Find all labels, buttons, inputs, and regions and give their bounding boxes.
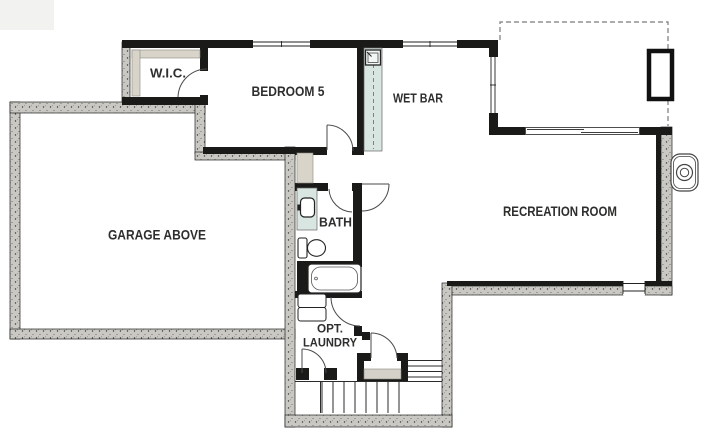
- rec-east-wall: [661, 127, 672, 295]
- west-column-wall: [285, 147, 295, 427]
- vanity-faucet: [298, 205, 302, 211]
- floor-plan-canvas: W.I.C. BEDROOM 5 WET BAR GARAGE ABOVE BA…: [0, 0, 720, 439]
- room-label-wet-bar: WET BAR: [393, 91, 443, 106]
- garage-step-wall: [195, 102, 205, 154]
- room-label-garage: GARAGE ABOVE: [108, 227, 206, 243]
- wic-west-wall: [122, 42, 130, 102]
- wetbar-window: [403, 40, 457, 48]
- landing-wall: [357, 353, 364, 382]
- room-label-recreation: RECREATION ROOM: [503, 203, 617, 219]
- rec-south-edge: [645, 281, 672, 286]
- rec-south-wall-right: [645, 286, 672, 295]
- stair-east-wall: [442, 283, 452, 427]
- room-label-laundry-line1: OPT.: [317, 322, 343, 336]
- bedroom-wetbar-divider: [357, 44, 364, 155]
- staircase: [295, 361, 442, 414]
- washer-dryer: [298, 294, 326, 321]
- bath-east-wall: [353, 183, 362, 267]
- north-wall-seg: [122, 40, 253, 48]
- patio-side-window: [489, 57, 498, 113]
- landing-wall: [401, 353, 408, 382]
- scan-artifact: [0, 0, 54, 30]
- patio-dashed-outline: [500, 22, 668, 126]
- bath-door-swing: [329, 189, 352, 212]
- linen-shelf: [297, 153, 313, 183]
- wic-east-wall: [200, 95, 208, 105]
- room-label-bedroom5: BEDROOM 5: [252, 83, 325, 99]
- landing-tread: [364, 369, 401, 379]
- washer: [298, 294, 326, 308]
- rec-door-swing: [362, 184, 389, 211]
- rec-east-inner-edge: [656, 131, 661, 281]
- south-wall: [285, 415, 452, 427]
- dryer: [298, 308, 326, 322]
- rec-south-wall-left: [447, 286, 623, 295]
- room-label-laundry-line2: LAUNDRY: [303, 336, 357, 350]
- wetbar-east-wall-seg: [489, 40, 498, 57]
- landing-door-swing: [371, 333, 397, 358]
- laundry-east-wall: [354, 326, 362, 336]
- garage-west-wall: [10, 102, 20, 339]
- floor-plan-drawing: W.I.C. BEDROOM 5 WET BAR GARAGE ABOVE BA…: [0, 0, 720, 439]
- rec-south-window: [623, 280, 645, 295]
- bedroom-window: [253, 40, 310, 48]
- landing-upper: [364, 361, 401, 369]
- wic-south-wall: [122, 97, 207, 105]
- rec-north-wall-seg: [489, 127, 525, 135]
- bedroom-south-wall: [203, 147, 295, 154]
- toilet-bowl: [308, 240, 326, 257]
- room-label-wic: W.I.C.: [150, 66, 186, 81]
- north-wall-seg: [310, 40, 403, 48]
- wic-shelf: [132, 50, 140, 96]
- wic-east-wall: [200, 40, 208, 71]
- laundry-east-wall: [362, 332, 370, 340]
- bedroom-door-swing: [327, 125, 353, 151]
- garage-south-wall: [10, 329, 295, 339]
- rec-south-edge: [447, 281, 623, 286]
- window-well: [649, 51, 672, 99]
- wic-shelf: [132, 50, 200, 58]
- room-label-bath: BATH: [319, 215, 352, 230]
- vanity-sink: [301, 198, 315, 217]
- sump-circle: [671, 154, 698, 191]
- wet-bar-counter-group: [364, 48, 382, 151]
- toilet-tank: [298, 238, 307, 258]
- rec-sliding-door: [525, 127, 640, 135]
- tub-west-wall: [297, 261, 309, 291]
